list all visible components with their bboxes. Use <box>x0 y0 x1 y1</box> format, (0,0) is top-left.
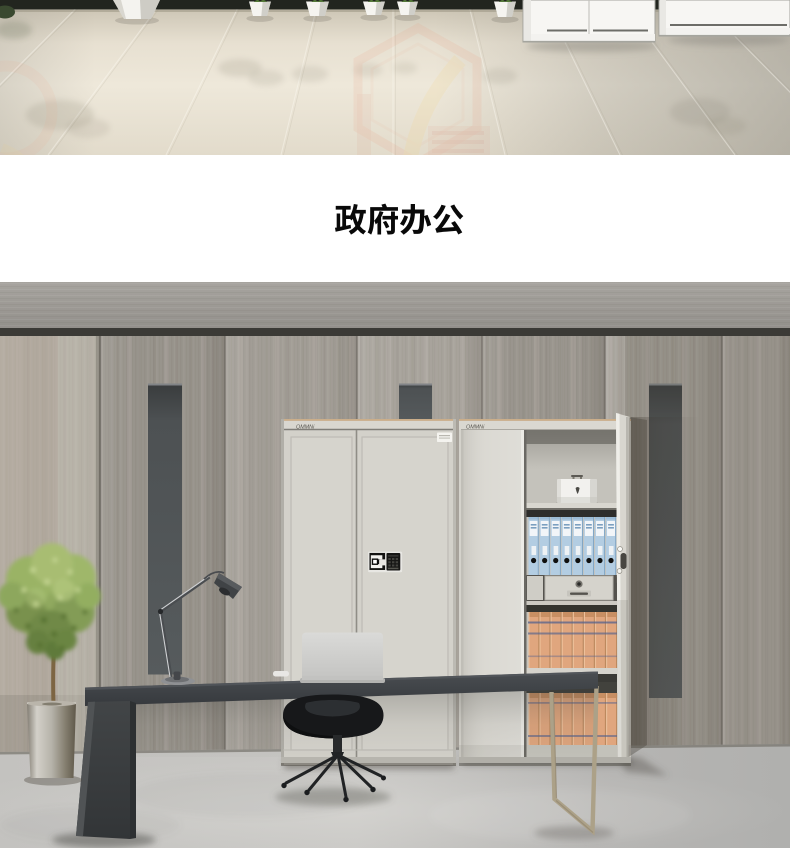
svg-text:OMMNi: OMMNi <box>296 425 315 431</box>
svg-text:OMMNi: OMMNi <box>466 425 485 431</box>
